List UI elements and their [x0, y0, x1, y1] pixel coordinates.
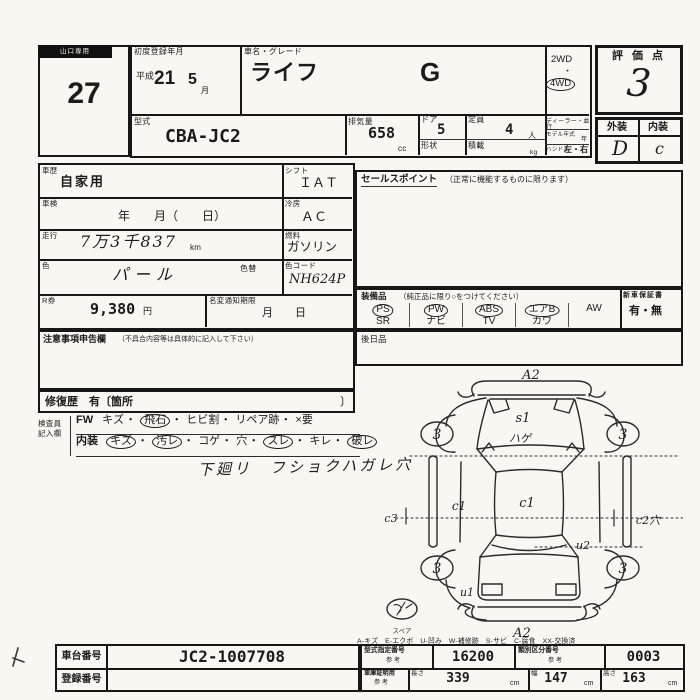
notes-subtitle: （不具合内容等は具体的に記入して下さい） — [118, 336, 258, 343]
left-panel-mark: c1 — [452, 499, 466, 513]
door-count: 5 — [437, 123, 445, 137]
type-number: 16200 — [432, 650, 514, 664]
roof-mark: c1 — [519, 496, 535, 511]
model-code: CBA-JC2 — [165, 128, 241, 146]
color-change-label: 色替 — [240, 265, 257, 273]
rename-value: 月 日 — [262, 308, 306, 319]
cooling-value: ＡＣ — [301, 210, 327, 223]
equipment-title: 装備品 — [361, 292, 387, 301]
vehicle-header-box: 初度登録年月 平成 21 5 月 車名・グレード ライフ G 2WD ・ 4WD… — [130, 45, 592, 158]
score-value: 3 — [597, 61, 681, 105]
repair-history-close: 〕 — [340, 397, 351, 408]
drive-dot: ・ — [563, 67, 572, 76]
interior-line: 内装 キズ・ 汚レ・ コゲ・ 穴・ スレ・ キレ・ 破レ — [76, 435, 360, 457]
right-panel-mark: c2穴 — [636, 514, 661, 527]
divider — [465, 114, 467, 155]
registration-month: 5 — [188, 72, 197, 88]
width-unit: cm — [584, 680, 593, 687]
capacity-count: 4 — [505, 123, 513, 137]
warranty-label: 新車保証書 — [623, 292, 663, 299]
ticket-label: R券 — [42, 297, 56, 305]
grade: G — [420, 59, 440, 85]
divider — [132, 114, 589, 116]
score-box: 評 価 点 3 — [595, 45, 683, 115]
fw-item: キズ — [102, 414, 124, 426]
divider — [282, 165, 284, 294]
divider — [40, 197, 352, 199]
model-year-unit: 年 — [581, 137, 587, 143]
divider — [418, 114, 420, 155]
lot-number: 27 — [40, 79, 128, 109]
lot-box: 山口専用 27 — [38, 45, 130, 157]
chassis-label: 車台番号 — [57, 652, 106, 662]
inspector-label-1: 検査員 — [38, 420, 61, 428]
color-label: 色 — [42, 262, 50, 270]
divider — [418, 139, 545, 140]
model-year-label: モデル年式 — [546, 133, 575, 139]
garage-cert-label: 車庫証明用 — [364, 671, 395, 677]
type-number-sublabel: 参 考 — [386, 658, 400, 664]
inspection-value: 年 月（ 日） — [118, 210, 226, 222]
repair-history-row: 修復歴 有〔箇所 〕 — [38, 390, 355, 413]
auction-sheet: 山口専用 27 初度登録年月 平成 21 5 月 車名・グレード ライフ G 2… — [0, 0, 700, 700]
car-name-label: 車名・グレード — [244, 48, 302, 56]
left-outer-mark: c3 — [384, 512, 397, 525]
color-code-label: 色コード — [285, 262, 316, 270]
divider — [515, 303, 516, 327]
ticket-unit: 円 — [143, 307, 152, 316]
separator: ・ — [220, 435, 233, 447]
notes-box: 注意事項申告欄 （不具合内容等は具体的に記入して下さい） — [38, 330, 355, 390]
exterior-label: 外装 — [607, 123, 627, 133]
spare-tire-label: スペア — [392, 627, 412, 635]
class-number-sublabel: 参 考 — [548, 658, 562, 664]
mileage-value: 7万3千837 — [80, 234, 177, 250]
warranty-value: 有・無 — [629, 306, 662, 317]
divider — [345, 114, 347, 155]
capacity-unit: 人 — [528, 132, 536, 140]
color-code-value: NH624P — [289, 273, 345, 286]
divider — [568, 303, 569, 327]
divider — [205, 294, 207, 327]
divider — [620, 290, 622, 328]
fw-item: ×要 — [295, 414, 312, 426]
inspector-section: 検査員 記入欄 FW キズ・ 飛石・ ヒビ割・ リペア跡・ ×要 内装 キズ・ … — [38, 414, 362, 461]
length-value: 339 — [408, 672, 508, 685]
registration-number-label: 登録番号 — [57, 675, 106, 685]
separator: ・ — [170, 414, 183, 426]
region-tag: 山口専用 — [38, 45, 112, 58]
mileage-label: 走行 — [42, 232, 58, 240]
ticket-value: 9,380 — [90, 302, 135, 317]
rear-right-mark: u2 — [576, 539, 590, 552]
registration-year: 21 — [154, 69, 175, 88]
repair-history-text: 修復歴 有〔箇所 — [45, 397, 133, 408]
spec-table: 型式指定番号 参 考 16200 類別区分番号 参 考 0003 車庫証明用 参… — [360, 644, 685, 692]
model-label: 型式 — [134, 118, 151, 126]
shift-value: ＩＡＴ — [299, 176, 338, 189]
divider — [462, 303, 463, 327]
wheel-rear-right-mark: 3 — [619, 561, 628, 577]
divider — [514, 646, 516, 668]
fuel-value: ガソリン — [287, 241, 337, 254]
fw-item: リペア跡 — [235, 414, 279, 426]
car-outline — [387, 381, 683, 621]
class-number-label: 類別区分番号 — [518, 648, 559, 655]
length-unit: cm — [510, 680, 519, 687]
equipment-subtitle: （純正品に限り○をつけてください） — [399, 293, 523, 301]
cooling-label: 冷房 — [285, 200, 301, 208]
details-box: 車歴 自家用 シフト ＩＡＴ 車検 年 月（ 日） 冷房 ＡＣ 走行 7万3千8… — [38, 163, 355, 330]
notes-title: 注意事項申告欄 — [43, 335, 106, 344]
fw-item: 飛石 — [140, 414, 170, 428]
separator: ・ — [247, 435, 260, 447]
equip-tv: TV — [483, 317, 496, 327]
finish-box: 外装 内装 D c — [595, 117, 683, 164]
door-label: ドア — [421, 116, 438, 124]
stray-pen-mark — [8, 645, 30, 671]
wheel-front-right-mark: 3 — [619, 427, 628, 443]
front-bumper-mark: A2 — [521, 368, 540, 383]
inspector-label-2: 記入欄 — [38, 430, 61, 438]
interior-grade: c — [655, 141, 664, 157]
later-items-label: 後日品 — [361, 335, 387, 344]
shape-label: 形状 — [421, 142, 438, 150]
rename-label: 名変通知期限 — [209, 297, 256, 305]
divider — [40, 294, 352, 296]
hood-note: ハゲ — [509, 432, 533, 445]
drive-4wd: 4WD — [546, 78, 575, 91]
capacity-label: 定員 — [468, 116, 485, 124]
class-number: 0003 — [604, 650, 683, 664]
interior-item: 穴 — [236, 435, 247, 447]
history-value: 自家用 — [60, 175, 105, 188]
height-value: 163 — [600, 672, 668, 685]
height-unit: cm — [668, 680, 677, 687]
interior-item: スレ — [263, 435, 293, 449]
divider — [57, 668, 358, 670]
exterior-grade: D — [612, 138, 628, 158]
interior-line-label: 内装 — [76, 435, 98, 447]
inspection-label: 車検 — [42, 200, 58, 208]
fw-item: ヒビ割 — [186, 414, 219, 426]
separator: ・ — [331, 435, 344, 447]
separator: ・ — [279, 414, 292, 426]
divider — [638, 120, 640, 161]
sales-point-title: セールスポイント — [361, 175, 437, 187]
type-number-label: 型式指定番号 — [364, 648, 405, 655]
sales-point-box: セールスポイント （正常に機能するものに限ります） — [355, 170, 683, 288]
load-label: 積載 — [468, 142, 485, 150]
separator: ・ — [136, 435, 149, 447]
mileage-unit: km — [190, 244, 201, 252]
garage-cert-sublabel: 参 考 — [374, 680, 388, 686]
later-items-box: 後日品 — [355, 330, 683, 366]
interior-item: コゲ — [198, 435, 220, 447]
divider — [40, 229, 352, 231]
drive-2wd: 2WD — [551, 55, 572, 65]
equip-navi: ナビ — [426, 317, 446, 327]
divider — [409, 303, 410, 327]
era-label: 平成 — [136, 72, 154, 81]
interior-item: キレ — [309, 435, 331, 447]
interior-label: 内装 — [648, 123, 668, 133]
chassis-table: 車台番号 JC2-1007708 登録番号 — [55, 644, 360, 692]
dealer-label: ディーラー・並行 — [546, 119, 590, 131]
rear-left-mark: u1 — [460, 586, 474, 599]
width-value: 147 — [528, 672, 584, 685]
car-name: ライフ — [250, 62, 319, 84]
handle-value: 左・右 — [564, 146, 588, 154]
sales-point-subtitle: （正常に機能するものに限ります） — [445, 176, 573, 184]
equip-leather: カワ — [532, 317, 552, 327]
interior-item: 汚レ — [152, 435, 182, 449]
equip-aw: AW — [586, 304, 602, 314]
interior-item: キズ — [106, 435, 136, 449]
chassis-number: JC2-1007708 — [106, 649, 358, 665]
fuel-label: 燃料 — [285, 232, 301, 240]
load-unit: kg — [530, 150, 537, 157]
fw-line: FW キズ・ 飛石・ ヒビ割・ リペア跡・ ×要 — [76, 414, 360, 435]
wheel-rear-left-mark: 3 — [433, 561, 442, 577]
month-unit: 月 — [201, 87, 209, 95]
displacement-value: 658 — [368, 126, 395, 141]
divider — [240, 47, 242, 114]
equip-sr: SR — [376, 317, 390, 327]
divider — [545, 47, 547, 114]
separator: ・ — [182, 435, 195, 447]
history-label: 車歴 — [42, 167, 58, 175]
wheel-front-left-mark: 3 — [433, 427, 442, 443]
separator: ・ — [219, 414, 232, 426]
color-value: パール — [112, 267, 178, 283]
separator: ・ — [124, 414, 137, 426]
hood-mark: s1 — [516, 411, 531, 426]
displacement-unit: cc — [398, 145, 407, 153]
first-registration-label: 初度登録年月 — [134, 48, 184, 56]
divider — [70, 416, 71, 456]
rear-bumper-mark: A2 — [512, 626, 531, 638]
separator: ・ — [293, 435, 306, 447]
fw-label: FW — [76, 414, 93, 426]
equipment-box: 装備品 （純正品に限り○をつけてください） PS PW ABS エアB AW S… — [355, 288, 683, 330]
car-diagram: A2 s1 ハゲ 3 3 3 3 c3 c1 c1 c2穴 u2 u1 A2 ス… — [355, 366, 683, 638]
shift-label: シフト — [285, 167, 308, 175]
